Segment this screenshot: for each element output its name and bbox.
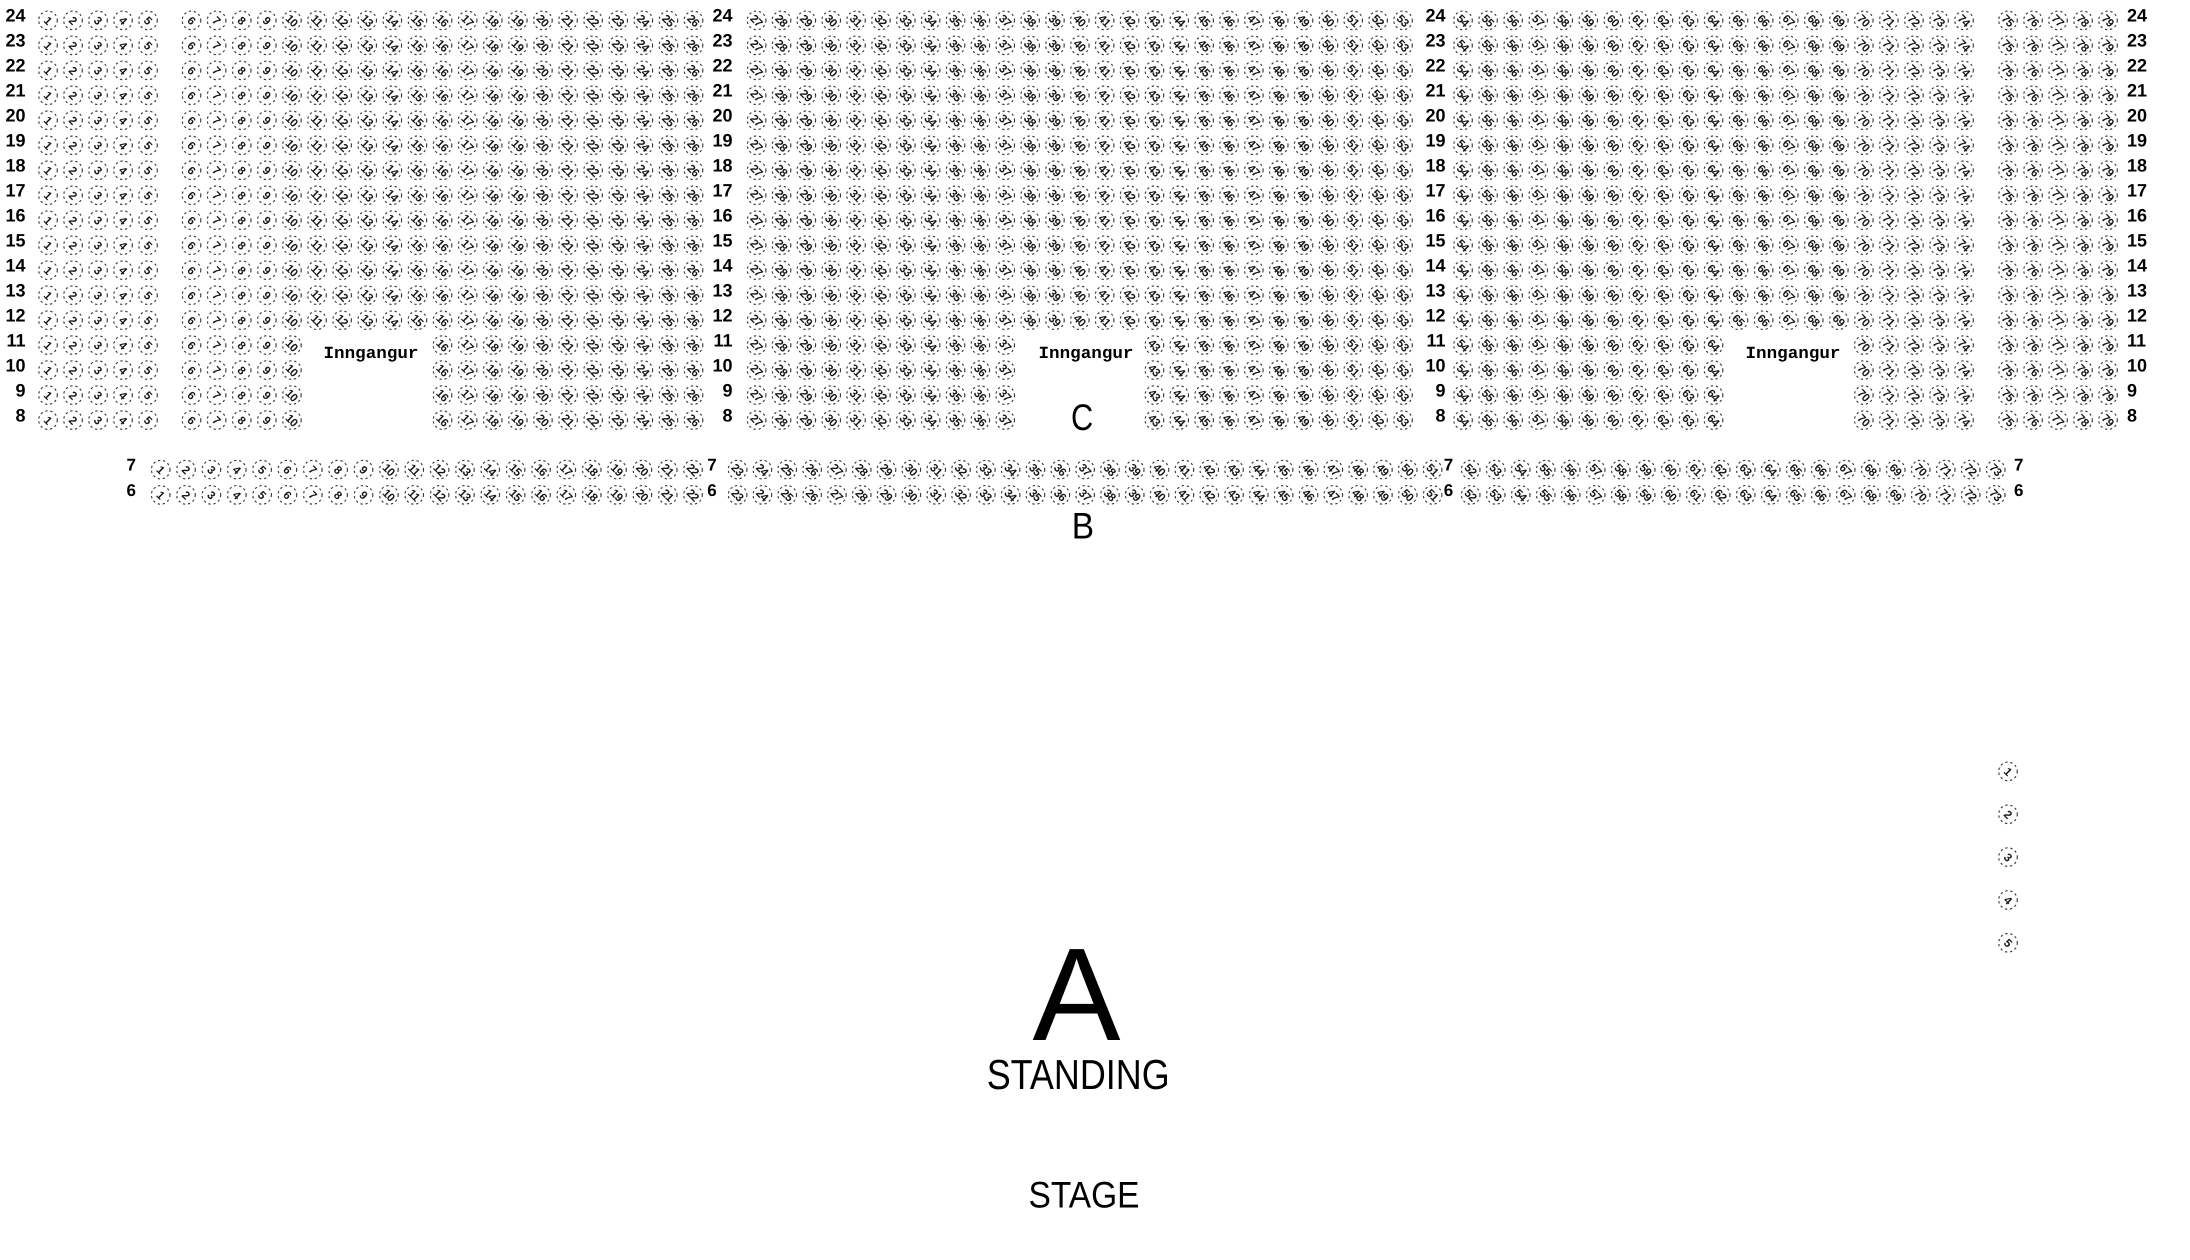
svg-text:28: 28 (772, 188, 790, 206)
svg-text:55: 55 (1479, 188, 1497, 206)
svg-text:14: 14 (481, 487, 499, 505)
svg-text:6: 6 (184, 90, 197, 103)
svg-text:4: 4 (116, 365, 129, 378)
svg-text:44: 44 (1170, 363, 1188, 381)
svg-text:11: 11 (2127, 330, 2146, 350)
svg-text:51: 51 (1344, 238, 1362, 256)
svg-text:61: 61 (1629, 363, 1647, 381)
svg-text:34: 34 (921, 38, 939, 56)
svg-text:2: 2 (66, 190, 79, 203)
svg-text:24: 24 (753, 462, 771, 480)
svg-text:35: 35 (946, 13, 964, 31)
svg-text:8: 8 (235, 240, 248, 253)
svg-text:28: 28 (852, 462, 870, 480)
svg-text:51: 51 (1344, 413, 1362, 431)
svg-text:34: 34 (921, 288, 939, 306)
svg-text:14: 14 (383, 288, 401, 306)
svg-text:24: 24 (634, 313, 652, 331)
svg-text:28: 28 (772, 263, 790, 281)
svg-text:41: 41 (1095, 163, 1113, 181)
svg-text:6: 6 (280, 464, 293, 477)
svg-text:4: 4 (116, 115, 129, 128)
svg-text:71: 71 (1880, 388, 1898, 406)
svg-text:6: 6 (184, 215, 197, 228)
svg-text:45: 45 (1195, 38, 1213, 56)
svg-text:5: 5 (141, 90, 154, 103)
svg-text:58: 58 (1554, 113, 1572, 131)
svg-text:2: 2 (66, 390, 79, 403)
svg-text:6: 6 (184, 340, 197, 353)
svg-text:55: 55 (1479, 38, 1497, 56)
svg-text:8: 8 (235, 65, 248, 78)
svg-text:7: 7 (209, 240, 222, 253)
svg-text:18: 18 (483, 88, 501, 106)
svg-text:9: 9 (260, 415, 273, 428)
svg-text:38: 38 (1101, 487, 1119, 505)
svg-text:35: 35 (946, 263, 964, 281)
svg-text:25: 25 (659, 263, 677, 281)
svg-text:65: 65 (1729, 63, 1747, 81)
svg-text:23: 23 (5, 31, 25, 51)
svg-text:34: 34 (1001, 462, 1019, 480)
svg-text:6: 6 (184, 390, 197, 403)
svg-text:15: 15 (408, 238, 426, 256)
svg-text:21: 21 (559, 213, 577, 231)
svg-text:7: 7 (209, 90, 222, 103)
svg-text:64: 64 (1704, 413, 1722, 431)
svg-text:41: 41 (1095, 263, 1113, 281)
svg-text:17: 17 (1425, 181, 1445, 201)
svg-text:24: 24 (712, 6, 732, 26)
svg-text:78: 78 (2074, 163, 2092, 181)
svg-text:64: 64 (1704, 213, 1722, 231)
svg-text:74: 74 (1955, 213, 1973, 231)
svg-text:61: 61 (1629, 188, 1647, 206)
svg-text:65: 65 (1729, 213, 1747, 231)
svg-text:24: 24 (634, 138, 652, 156)
svg-text:45: 45 (1195, 363, 1213, 381)
svg-text:68: 68 (1804, 38, 1822, 56)
svg-text:68: 68 (1861, 462, 1879, 480)
svg-text:15: 15 (408, 88, 426, 106)
svg-text:54: 54 (1454, 288, 1472, 306)
svg-text:14: 14 (383, 163, 401, 181)
svg-text:Inngangur: Inngangur (1746, 345, 1841, 364)
svg-text:2: 2 (66, 40, 79, 53)
svg-text:74: 74 (1955, 388, 1973, 406)
svg-text:34: 34 (921, 238, 939, 256)
svg-text:15: 15 (408, 288, 426, 306)
svg-text:65: 65 (1729, 188, 1747, 206)
svg-text:5: 5 (2001, 937, 2014, 950)
svg-text:4: 4 (116, 240, 129, 253)
svg-text:74: 74 (1955, 188, 1973, 206)
svg-text:48: 48 (1269, 13, 1287, 31)
svg-text:3: 3 (91, 415, 104, 428)
svg-text:6: 6 (127, 481, 136, 500)
svg-text:15: 15 (408, 263, 426, 281)
svg-text:4: 4 (2001, 895, 2014, 908)
svg-text:7: 7 (209, 365, 222, 378)
svg-text:24: 24 (5, 6, 25, 26)
svg-text:78: 78 (2074, 263, 2092, 281)
svg-text:5: 5 (141, 315, 154, 328)
svg-text:28: 28 (772, 238, 790, 256)
svg-text:6: 6 (184, 190, 197, 203)
svg-text:28: 28 (772, 63, 790, 81)
svg-text:44: 44 (1250, 462, 1268, 480)
svg-text:34: 34 (921, 388, 939, 406)
svg-text:8: 8 (235, 415, 248, 428)
svg-text:41: 41 (1095, 13, 1113, 31)
svg-text:3: 3 (91, 265, 104, 278)
svg-text:68: 68 (1804, 238, 1822, 256)
svg-text:54: 54 (1454, 238, 1472, 256)
svg-text:34: 34 (921, 413, 939, 431)
svg-text:25: 25 (659, 38, 677, 56)
svg-text:2: 2 (179, 489, 192, 502)
svg-text:7: 7 (209, 40, 222, 53)
svg-text:44: 44 (1170, 413, 1188, 431)
svg-text:6: 6 (184, 365, 197, 378)
svg-text:4: 4 (116, 340, 129, 353)
svg-text:2: 2 (66, 240, 79, 253)
svg-text:64: 64 (1704, 238, 1722, 256)
svg-text:44: 44 (1170, 338, 1188, 356)
svg-text:41: 41 (1175, 462, 1193, 480)
svg-text:44: 44 (1170, 263, 1188, 281)
svg-text:6: 6 (184, 40, 197, 53)
svg-text:8: 8 (235, 115, 248, 128)
svg-text:31: 31 (927, 487, 945, 505)
svg-text:6: 6 (707, 481, 716, 500)
svg-text:78: 78 (2074, 88, 2092, 106)
svg-text:1: 1 (41, 415, 54, 428)
svg-text:38: 38 (1021, 138, 1039, 156)
svg-text:58: 58 (1554, 313, 1572, 331)
svg-text:75: 75 (1999, 13, 2017, 31)
svg-text:12: 12 (5, 306, 25, 326)
svg-text:21: 21 (559, 238, 577, 256)
svg-text:14: 14 (383, 188, 401, 206)
svg-text:25: 25 (659, 363, 677, 381)
svg-text:71: 71 (1880, 188, 1898, 206)
svg-text:58: 58 (1554, 63, 1572, 81)
svg-text:15: 15 (408, 188, 426, 206)
svg-text:2: 2 (2001, 809, 2014, 822)
svg-text:5: 5 (141, 165, 154, 178)
svg-text:45: 45 (1195, 288, 1213, 306)
svg-text:9: 9 (260, 65, 273, 78)
svg-text:41: 41 (1095, 238, 1113, 256)
svg-text:18: 18 (483, 388, 501, 406)
svg-text:45: 45 (1195, 163, 1213, 181)
svg-text:24: 24 (634, 63, 652, 81)
svg-text:18: 18 (712, 156, 732, 176)
svg-text:21: 21 (559, 388, 577, 406)
svg-text:64: 64 (1704, 288, 1722, 306)
svg-text:5: 5 (141, 265, 154, 278)
svg-text:74: 74 (1955, 238, 1973, 256)
svg-text:71: 71 (1880, 288, 1898, 306)
svg-text:4: 4 (116, 65, 129, 78)
svg-text:3: 3 (91, 115, 104, 128)
svg-text:1: 1 (41, 165, 54, 178)
svg-text:5: 5 (141, 215, 154, 228)
svg-text:STAGE: STAGE (1029, 1175, 1140, 1216)
svg-text:74: 74 (1955, 163, 1973, 181)
svg-text:25: 25 (778, 487, 796, 505)
svg-text:24: 24 (634, 238, 652, 256)
svg-text:23: 23 (2127, 31, 2147, 51)
svg-text:34: 34 (1001, 487, 1019, 505)
svg-text:2: 2 (66, 140, 79, 153)
svg-text:6: 6 (184, 140, 197, 153)
svg-text:75: 75 (1999, 263, 2017, 281)
svg-text:35: 35 (946, 88, 964, 106)
svg-text:48: 48 (1269, 338, 1287, 356)
svg-text:44: 44 (1170, 188, 1188, 206)
svg-text:9: 9 (260, 340, 273, 353)
svg-text:45: 45 (1195, 338, 1213, 356)
svg-text:15: 15 (408, 138, 426, 156)
svg-text:71: 71 (1880, 313, 1898, 331)
svg-text:44: 44 (1170, 138, 1188, 156)
svg-text:8: 8 (235, 340, 248, 353)
svg-text:75: 75 (1999, 188, 2017, 206)
svg-text:68: 68 (1804, 63, 1822, 81)
svg-text:10: 10 (712, 355, 732, 375)
svg-text:C: C (1071, 397, 1093, 438)
svg-text:51: 51 (1344, 138, 1362, 156)
svg-text:34: 34 (921, 13, 939, 31)
svg-text:3: 3 (91, 15, 104, 28)
svg-text:7: 7 (209, 140, 222, 153)
svg-text:68: 68 (1804, 138, 1822, 156)
svg-text:65: 65 (1786, 462, 1804, 480)
svg-text:3: 3 (2001, 852, 2014, 865)
svg-text:6: 6 (184, 15, 197, 28)
svg-text:14: 14 (383, 313, 401, 331)
svg-text:15: 15 (408, 163, 426, 181)
svg-text:15: 15 (5, 231, 25, 251)
svg-text:61: 61 (1629, 138, 1647, 156)
svg-text:8: 8 (235, 165, 248, 178)
svg-text:54: 54 (1454, 338, 1472, 356)
svg-text:58: 58 (1554, 213, 1572, 231)
svg-text:65: 65 (1786, 487, 1804, 505)
svg-text:78: 78 (2074, 313, 2092, 331)
svg-text:23: 23 (712, 31, 732, 51)
svg-text:41: 41 (1175, 487, 1193, 505)
svg-text:8: 8 (722, 405, 732, 425)
svg-text:55: 55 (1479, 263, 1497, 281)
svg-text:31: 31 (847, 138, 865, 156)
svg-text:3: 3 (91, 65, 104, 78)
svg-text:8: 8 (1435, 405, 1445, 425)
svg-text:54: 54 (1454, 113, 1472, 131)
svg-text:5: 5 (255, 489, 268, 502)
svg-text:34: 34 (921, 213, 939, 231)
svg-text:74: 74 (1955, 13, 1973, 31)
svg-text:68: 68 (1861, 487, 1879, 505)
svg-text:65: 65 (1729, 88, 1747, 106)
svg-text:18: 18 (483, 288, 501, 306)
svg-text:58: 58 (1554, 163, 1572, 181)
svg-text:5: 5 (141, 65, 154, 78)
svg-text:48: 48 (1269, 263, 1287, 281)
svg-text:9: 9 (260, 315, 273, 328)
svg-text:20: 20 (712, 106, 732, 126)
svg-text:45: 45 (1195, 388, 1213, 406)
svg-text:54: 54 (1454, 63, 1472, 81)
svg-text:14: 14 (383, 138, 401, 156)
svg-text:19: 19 (5, 131, 25, 151)
svg-text:48: 48 (1349, 462, 1367, 480)
svg-text:10: 10 (1425, 355, 1445, 375)
svg-text:54: 54 (1511, 487, 1529, 505)
svg-text:2: 2 (179, 464, 192, 477)
svg-text:24: 24 (2127, 6, 2147, 26)
svg-text:1: 1 (41, 90, 54, 103)
svg-text:31: 31 (847, 363, 865, 381)
svg-text:5: 5 (255, 464, 268, 477)
svg-text:6: 6 (1444, 481, 1453, 500)
svg-text:18: 18 (483, 263, 501, 281)
svg-text:3: 3 (91, 90, 104, 103)
svg-text:35: 35 (1026, 462, 1044, 480)
svg-text:51: 51 (1344, 363, 1362, 381)
svg-text:65: 65 (1729, 113, 1747, 131)
svg-text:5: 5 (141, 140, 154, 153)
svg-text:21: 21 (658, 487, 676, 505)
svg-text:2: 2 (66, 340, 79, 353)
svg-text:5: 5 (141, 290, 154, 303)
svg-text:28: 28 (852, 487, 870, 505)
svg-text:25: 25 (659, 163, 677, 181)
svg-text:65: 65 (1729, 138, 1747, 156)
svg-text:78: 78 (2074, 288, 2092, 306)
svg-text:71: 71 (1880, 338, 1898, 356)
svg-text:71: 71 (1880, 138, 1898, 156)
svg-text:14: 14 (2127, 256, 2147, 276)
svg-text:31: 31 (847, 188, 865, 206)
svg-text:5: 5 (141, 340, 154, 353)
svg-text:68: 68 (1804, 313, 1822, 331)
svg-text:3: 3 (91, 340, 104, 353)
svg-text:51: 51 (1344, 63, 1362, 81)
svg-text:14: 14 (712, 256, 732, 276)
svg-text:71: 71 (1880, 88, 1898, 106)
svg-text:21: 21 (559, 138, 577, 156)
svg-text:38: 38 (1021, 263, 1039, 281)
svg-text:55: 55 (1479, 113, 1497, 131)
svg-text:61: 61 (1629, 38, 1647, 56)
svg-text:2: 2 (66, 65, 79, 78)
svg-text:18: 18 (582, 487, 600, 505)
svg-text:4: 4 (116, 415, 129, 428)
svg-text:20: 20 (1425, 106, 1445, 126)
svg-text:64: 64 (1704, 88, 1722, 106)
svg-text:44: 44 (1170, 113, 1188, 131)
svg-text:14: 14 (383, 13, 401, 31)
svg-text:25: 25 (778, 462, 796, 480)
svg-text:14: 14 (383, 38, 401, 56)
svg-text:24: 24 (634, 388, 652, 406)
svg-text:18: 18 (5, 156, 25, 176)
svg-text:5: 5 (141, 190, 154, 203)
svg-text:71: 71 (1936, 462, 1954, 480)
svg-text:15: 15 (408, 13, 426, 31)
svg-text:9: 9 (260, 265, 273, 278)
svg-text:48: 48 (1269, 188, 1287, 206)
svg-text:34: 34 (921, 263, 939, 281)
svg-text:8: 8 (331, 464, 344, 477)
svg-text:38: 38 (1021, 213, 1039, 231)
svg-text:Inngangur: Inngangur (324, 345, 419, 364)
svg-text:74: 74 (1955, 338, 1973, 356)
svg-text:61: 61 (1629, 413, 1647, 431)
svg-text:15: 15 (712, 231, 732, 251)
svg-text:68: 68 (1804, 188, 1822, 206)
svg-text:75: 75 (1999, 388, 2017, 406)
svg-text:24: 24 (634, 363, 652, 381)
svg-text:15: 15 (408, 113, 426, 131)
svg-text:71: 71 (1880, 413, 1898, 431)
svg-text:3: 3 (91, 165, 104, 178)
svg-text:74: 74 (1955, 413, 1973, 431)
svg-text:61: 61 (1629, 238, 1647, 256)
svg-text:48: 48 (1269, 363, 1287, 381)
svg-text:21: 21 (559, 13, 577, 31)
svg-text:21: 21 (658, 462, 676, 480)
svg-text:12: 12 (2127, 306, 2147, 326)
svg-text:6: 6 (184, 240, 197, 253)
svg-text:9: 9 (260, 390, 273, 403)
svg-text:22: 22 (5, 56, 25, 76)
svg-text:28: 28 (772, 413, 790, 431)
svg-text:8: 8 (235, 90, 248, 103)
svg-text:35: 35 (946, 238, 964, 256)
svg-text:44: 44 (1170, 213, 1188, 231)
svg-text:54: 54 (1454, 213, 1472, 231)
svg-text:74: 74 (1955, 263, 1973, 281)
svg-text:71: 71 (1880, 163, 1898, 181)
svg-text:58: 58 (1554, 238, 1572, 256)
svg-text:7: 7 (209, 265, 222, 278)
svg-text:51: 51 (1344, 113, 1362, 131)
svg-text:1: 1 (41, 215, 54, 228)
svg-text:78: 78 (2074, 363, 2092, 381)
svg-text:45: 45 (1195, 413, 1213, 431)
svg-text:71: 71 (1880, 113, 1898, 131)
svg-text:18: 18 (1425, 156, 1445, 176)
svg-text:1: 1 (41, 365, 54, 378)
svg-text:21: 21 (559, 338, 577, 356)
svg-text:75: 75 (1999, 413, 2017, 431)
svg-text:8: 8 (235, 265, 248, 278)
svg-text:15: 15 (408, 213, 426, 231)
svg-text:17: 17 (712, 181, 732, 201)
svg-text:74: 74 (1955, 113, 1973, 131)
svg-text:58: 58 (1554, 38, 1572, 56)
svg-text:16: 16 (1425, 206, 1445, 226)
svg-text:Inngangur: Inngangur (1039, 345, 1134, 364)
svg-text:8: 8 (235, 15, 248, 28)
svg-text:31: 31 (847, 113, 865, 131)
svg-text:3: 3 (91, 390, 104, 403)
svg-text:51: 51 (1344, 313, 1362, 331)
